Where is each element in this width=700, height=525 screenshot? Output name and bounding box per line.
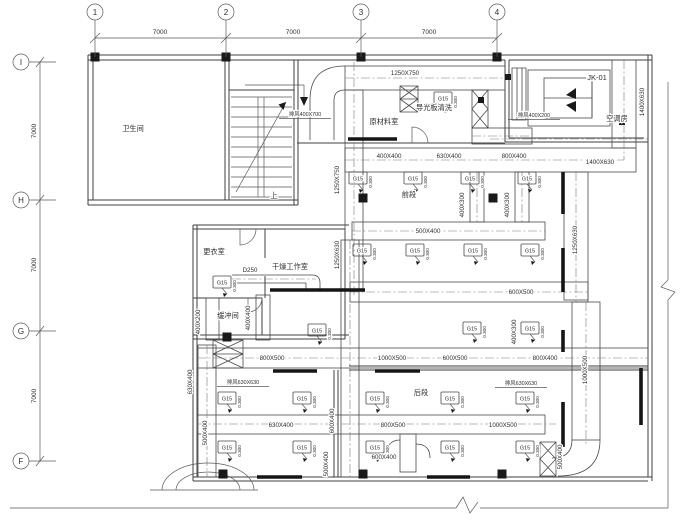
damper-symbol [478,97,484,103]
duct-size-label: 400X300 [459,192,466,217]
elevation-label: 0.300 [540,326,545,338]
elevation-label: 0.300 [312,445,317,457]
diffuser-arrow [227,404,232,410]
flex-connector-hatch [540,442,556,476]
duct-size-label: 800X500 [260,355,285,362]
diffuser: G150.300 [521,322,545,343]
floor-plan-canvas: 1234700070007000IHGF700070007000 G150.30… [0,0,700,525]
diffuser: G150.300 [218,392,242,413]
diffuser-label: G15 [357,249,367,255]
dimension-text: 7000 [422,29,437,36]
exhaust-label: 排风400X700 [289,110,321,118]
elevation-label: 0.300 [237,396,242,408]
diffuser-arrow [302,453,307,459]
diffuser-label: G15 [222,397,232,403]
elevation-label: 0.300 [368,176,373,188]
elevation-label: 0.300 [327,328,332,340]
diffuser-arrow [472,334,477,340]
dimension-text: 7000 [153,29,168,36]
elevation-label: 0.300 [540,248,545,260]
duct-size-label: 500X400 [323,451,330,476]
diffuser-label: G15 [217,281,227,287]
room-label: 空调房 [606,114,628,123]
duct-size-label: 1400X630 [586,159,615,166]
flow-arrowhead [300,97,308,106]
grid-bubble-label: G [18,327,24,336]
room-label: 上 [270,191,277,200]
diffuser-arrow [222,288,227,294]
duct-size-label: 600X500 [443,355,468,362]
exhaust-label: 排风400X200 [518,111,550,119]
diffuser-label: G15 [520,446,530,452]
inline-fan [213,340,243,368]
duct-centerlines [197,60,648,477]
elevation-label: 0.300 [460,396,465,408]
duct-size-label: 400X400 [245,305,252,330]
duct-size-label: 630X400 [269,422,294,429]
duct-size-label: 1250X750 [334,165,341,194]
diffuser-label: G15 [312,329,322,335]
diffuser-arrow [525,404,530,410]
column-marker [489,194,498,203]
duct-size-label: 1000X500 [582,355,589,384]
grid-bubble-label: H [18,196,24,205]
elevation-label: 0.300 [372,248,377,260]
diffuser-arrow [525,453,530,459]
diffuser-label: G15 [522,177,532,183]
grid-bubble-label: F [19,457,24,466]
elevation-label: 0.300 [460,445,465,457]
duct-size-label: 600X400 [329,408,336,433]
diffuser-arrow [470,184,475,190]
dimension-text: 7000 [31,123,38,138]
diffuser-label: G15 [222,446,232,452]
column-marker [498,470,507,479]
diffuser-label: G15 [520,397,530,403]
diffuser: G150.300 [353,244,377,265]
duct-size-label: D250 [243,267,258,274]
diffuser-label: G15 [445,446,455,452]
grid-system: 1234700070007000IHGF700070007000 [13,4,505,469]
duct-size-label: 630X400 [437,153,462,160]
duct-size-label: 400X200 [195,309,202,334]
diffuser-label: G15 [408,177,418,183]
diffuser: G150.300 [293,441,317,462]
room-label: 缓冲间 [217,311,239,320]
column-marker [223,333,232,342]
room-label: 更衣室 [203,247,225,256]
diffuser-arrow [302,404,307,410]
dimension-text: 7000 [31,257,38,272]
dimension-text: 7000 [286,29,301,36]
duct-size-label: 1250X630 [334,240,341,269]
duct-size-label: 600X400 [372,454,397,461]
duct-size-label: 600X500 [509,289,534,296]
grid-bubble-label: 3 [359,8,364,17]
diffuser-label: G15 [297,446,307,452]
duct-size-label: 400X300 [511,319,518,344]
diffuser-label: G15 [438,97,448,103]
diffuser-label: G15 [370,446,380,452]
diffuser: G150.300 [516,392,540,413]
diffuser-label: G15 [468,249,478,255]
hvac-duct-plan: 1234700070007000IHGF700070007000 G150.30… [0,0,700,525]
elevation-label: 0.300 [385,396,390,408]
diffuser-label: G15 [370,397,380,403]
diffuser: G150.300 [521,244,545,265]
diffuser: G150.300 [518,172,542,193]
diffusers: G150.300G150.300G150.300G150.300G150.300… [213,92,545,462]
diffuser-arrow [527,184,532,190]
elevation-label: 0.300 [480,176,485,188]
room-label: 原材料室 [370,117,399,126]
grid-bubble-label: I [20,58,22,67]
flex-connector-hatch [472,90,488,128]
duct-size-label: 500X400 [416,228,441,235]
duct-size-label: 1250X630 [572,225,579,254]
elevation-label: 0.300 [425,248,430,260]
duct-network [197,60,648,477]
diffuser-label: G15 [525,327,535,333]
duct-size-label: 1000X500 [378,355,407,362]
diffuser-label: G15 [467,327,477,333]
diffuser: G150.300 [441,392,465,413]
diffuser: G150.300 [463,322,487,343]
duct-size-label: 500X400 [202,420,209,445]
diffuser-label: G15 [465,177,475,183]
exhaust-label: 排风630X630 [227,378,259,386]
duct-size-label: 630X400 [187,369,194,394]
elevation-label: 0.300 [312,396,317,408]
equipment-label: JK-01 [587,73,607,82]
elevation-label: 0.300 [535,445,540,457]
diffuser: G150.300 [366,392,390,413]
diffuser-label: G15 [525,249,535,255]
room-label: 导光板清洗 [416,103,452,112]
duct-size-label: 500X400 [557,444,564,469]
duct-size-label: 800X500 [381,422,406,429]
grid-bubble-label: 4 [495,8,500,17]
elevation-label: 0.300 [237,445,242,457]
diffuser-arrow [358,184,363,190]
annotations: 卫生间原材料室导光板清洗空调房更衣室干燥工作室缓冲间前段后段上JK-011250… [122,70,646,476]
exhaust-label: 排风630X630 [505,379,537,387]
diffuser-arrow [415,256,420,262]
column-marker [359,194,368,203]
column-marker [359,470,368,479]
room-label: 卫生间 [122,124,144,133]
diffuser-label: G15 [297,397,307,403]
duct-size-label: 400X300 [504,192,511,217]
column-marker [219,470,228,479]
room-label: 干燥工作室 [272,262,308,271]
duct-size-label: 800X400 [502,153,527,160]
diffuser-arrow [227,453,232,459]
stairs [231,85,308,197]
break-mark-bottom [456,497,478,513]
grid-bubble-label: 2 [224,8,229,17]
diffuser-arrow [530,334,535,340]
damper-symbol [505,74,511,80]
diffuser-arrow [450,404,455,410]
elevation-label: 0.300 [423,176,428,188]
diffuser: G150.300 [464,244,488,265]
elevation-label: 0.300 [483,248,488,260]
diffuser: G150.300 [461,172,485,193]
diffuser: G150.300 [441,441,465,462]
diffuser-arrow [450,453,455,459]
diffuser-arrow [530,256,535,262]
elevation-label: 0.300 [537,176,542,188]
duct-size-label: 1400X630 [639,87,646,116]
diffuser-label: G15 [410,249,420,255]
duct-size-label: 1250X750 [391,70,420,77]
diffuser-label: G15 [445,397,455,403]
grid-bubble-label: 1 [93,8,98,17]
elevation-label: 0.300 [453,96,458,108]
diffuser-arrow [375,404,380,410]
diffuser: G150.300 [349,172,373,193]
dimension-text: 7000 [31,388,38,403]
site-boundary [10,82,675,513]
elevation-label: 0.300 [232,280,237,292]
diffuser: G150.300 [293,392,317,413]
duct-size-label: 800X400 [533,355,558,362]
duct-size-label: 400X400 [377,153,402,160]
elevation-label: 0.300 [535,396,540,408]
diffuser: G150.300 [516,441,540,462]
diffuser: G150.300 [406,244,430,265]
room-label: 后段 [414,388,428,397]
elevation-label: 0.300 [482,326,487,338]
diffuser: G150.300 [218,441,242,462]
room-label: 前段 [402,190,416,199]
duct-size-label: 1000X500 [489,422,518,429]
diffuser-label: G15 [353,177,363,183]
diffuser-arrow [473,256,478,262]
break-mark-right [661,280,675,300]
